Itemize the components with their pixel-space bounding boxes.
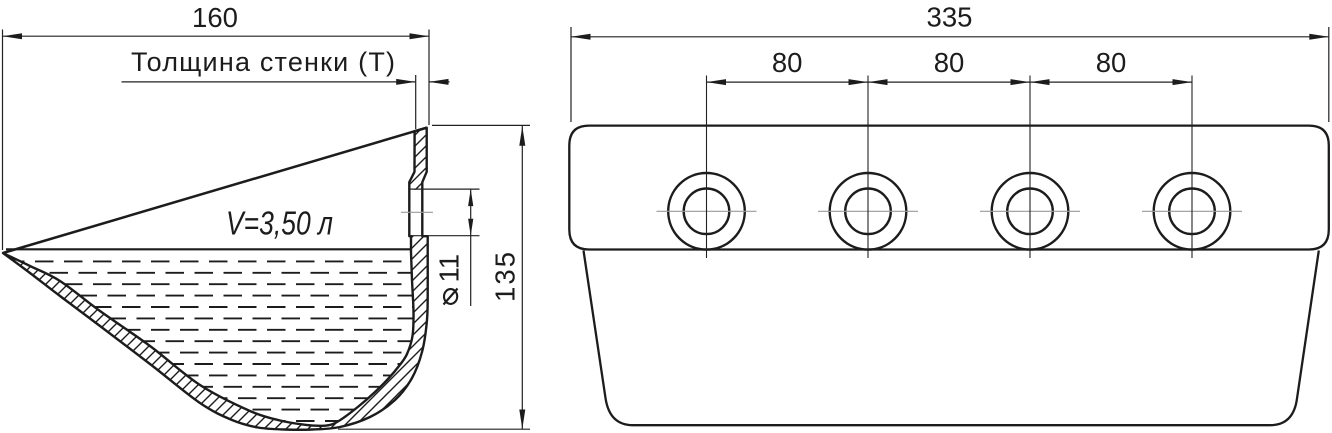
svg-text:Толщина стенки (Т): Толщина стенки (Т) (131, 47, 395, 77)
svg-text:160: 160 (192, 2, 238, 33)
svg-text:80: 80 (772, 47, 803, 78)
svg-text:135: 135 (490, 252, 521, 302)
svg-text:335: 335 (927, 2, 973, 33)
svg-text:80: 80 (1096, 47, 1127, 78)
svg-text:80: 80 (934, 47, 965, 78)
svg-text:11: 11 (434, 254, 465, 283)
svg-text:V=3,50 л: V=3,50 л (226, 205, 333, 242)
